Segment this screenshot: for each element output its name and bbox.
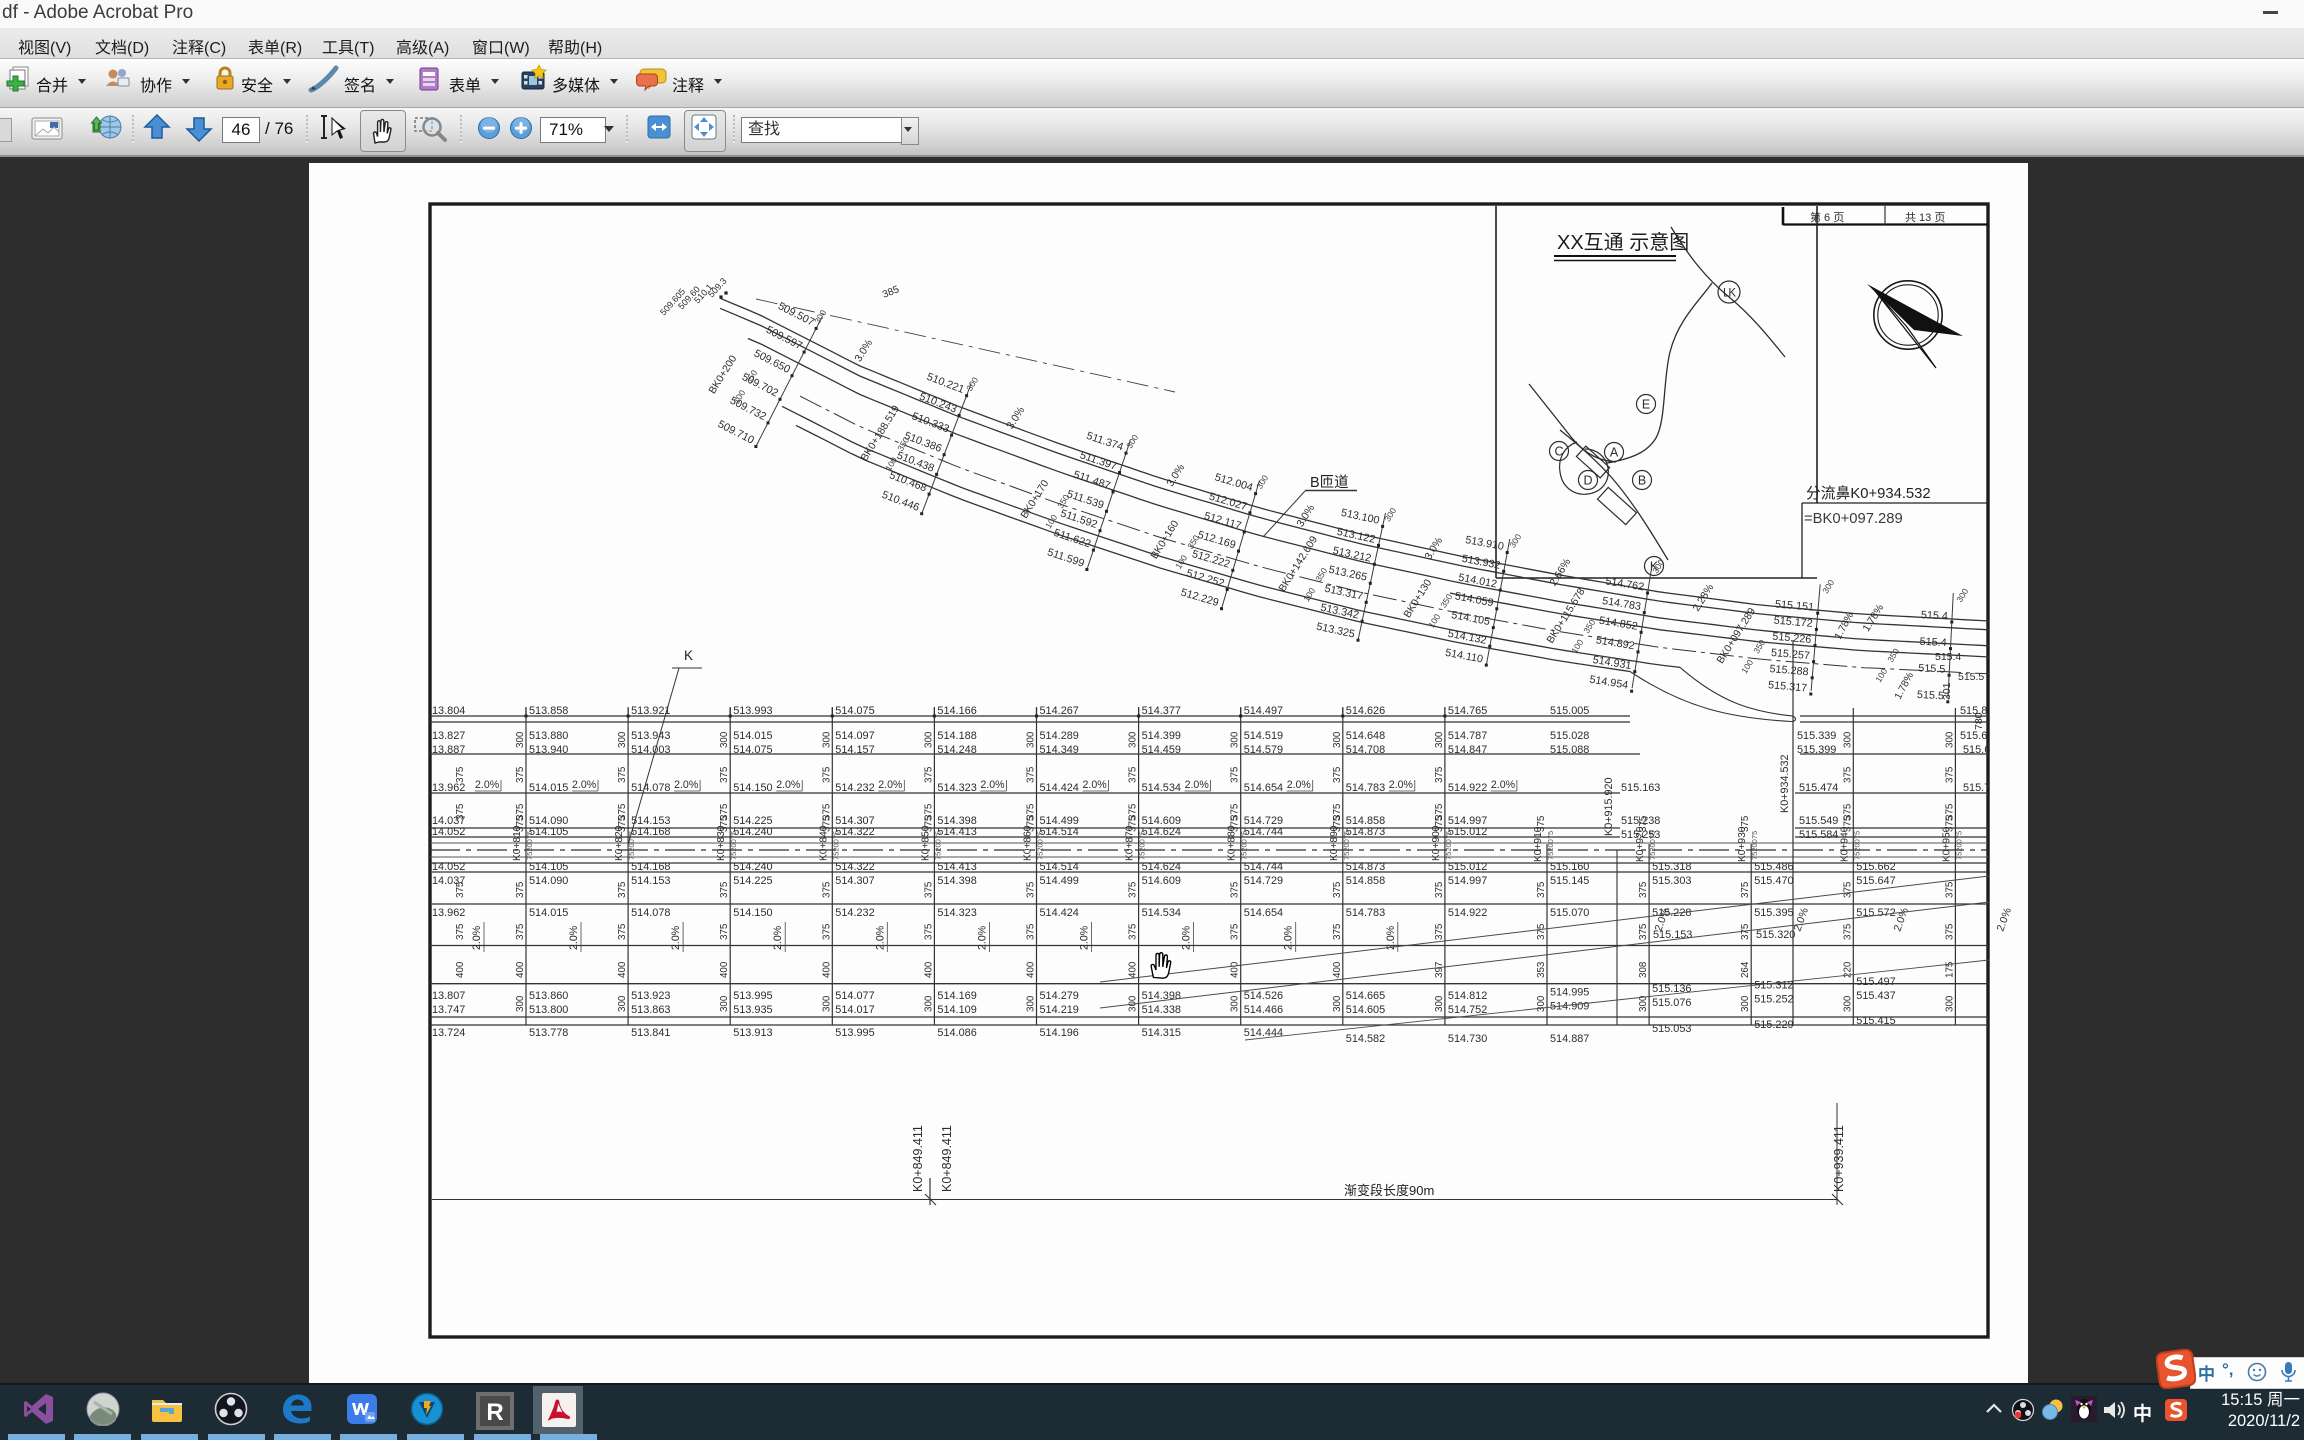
svg-text:514.090: 514.090 xyxy=(529,875,568,887)
svg-text:514.730: 514.730 xyxy=(1448,1033,1487,1045)
svg-text:375: 375 xyxy=(1842,815,1853,832)
svg-text:13.724: 13.724 xyxy=(432,1027,465,1039)
svg-text:513.841: 513.841 xyxy=(631,1027,670,1039)
svg-text:E: E xyxy=(1642,398,1650,412)
svg-text:514.015: 514.015 xyxy=(529,907,568,919)
svg-text:515.6: 515.6 xyxy=(1963,744,1990,756)
svg-text:375: 375 xyxy=(1026,766,1037,783)
svg-text:300: 300 xyxy=(515,731,526,748)
svg-text:514.349: 514.349 xyxy=(1040,744,1079,756)
svg-text:13.804: 13.804 xyxy=(432,705,465,717)
svg-text:514.279: 514.279 xyxy=(1040,990,1079,1002)
svg-text:515.437: 515.437 xyxy=(1856,990,1895,1002)
svg-text:513.778: 513.778 xyxy=(529,1027,568,1039)
svg-text:514.873: 514.873 xyxy=(1346,861,1385,873)
svg-text:375: 375 xyxy=(719,881,730,898)
svg-text:514.459: 514.459 xyxy=(1142,744,1181,756)
svg-text:515.497: 515.497 xyxy=(1856,976,1895,988)
svg-text:514.887: 514.887 xyxy=(1550,1033,1589,1045)
svg-text:515.136: 515.136 xyxy=(1652,983,1691,995)
svg-text:400: 400 xyxy=(1230,961,1241,978)
svg-text:513.860: 513.860 xyxy=(529,990,568,1002)
svg-text:514.624: 514.624 xyxy=(1142,826,1181,838)
svg-text:513.863: 513.863 xyxy=(631,1004,670,1016)
svg-text:515.395: 515.395 xyxy=(1754,907,1793,919)
svg-text:515.163: 515.163 xyxy=(1621,782,1660,794)
svg-text:513.995: 513.995 xyxy=(835,1027,874,1039)
svg-text:514.196: 514.196 xyxy=(1040,1027,1079,1039)
svg-text:375: 375 xyxy=(1332,923,1343,940)
svg-text:375: 375 xyxy=(719,766,730,783)
svg-text:514.232: 514.232 xyxy=(835,782,874,794)
svg-text:514.534: 514.534 xyxy=(1142,782,1181,794)
svg-text:514.105: 514.105 xyxy=(529,826,568,838)
svg-text:515.303: 515.303 xyxy=(1652,875,1691,887)
svg-text:375: 375 xyxy=(1740,815,1751,832)
svg-text:514.534: 514.534 xyxy=(1142,907,1181,919)
svg-text:375: 375 xyxy=(617,923,628,940)
svg-text:375: 375 xyxy=(1026,923,1037,940)
svg-text:515.6: 515.6 xyxy=(1960,730,1987,742)
svg-text:300: 300 xyxy=(1026,731,1037,748)
svg-text:2.0%: 2.0% xyxy=(874,925,886,950)
svg-text:514.153: 514.153 xyxy=(631,875,670,887)
svg-text:514.078: 514.078 xyxy=(631,782,670,794)
svg-text:513.935: 513.935 xyxy=(733,1004,772,1016)
svg-text:2.0%: 2.0% xyxy=(1181,925,1193,950)
svg-text:R: R xyxy=(486,1399,503,1426)
svg-text:514.077: 514.077 xyxy=(835,990,874,1002)
svg-text:514.219: 514.219 xyxy=(1040,1004,1079,1016)
svg-text:514.783: 514.783 xyxy=(1346,782,1385,794)
svg-text:514.157: 514.157 xyxy=(835,744,874,756)
svg-text:513.880: 513.880 xyxy=(529,730,568,742)
svg-text:LK: LK xyxy=(1723,288,1736,300)
svg-text:2.0%: 2.0% xyxy=(674,779,699,791)
svg-text:515.339: 515.339 xyxy=(1797,730,1836,742)
svg-text:375: 375 xyxy=(1230,766,1241,783)
svg-text:513.943: 513.943 xyxy=(631,730,670,742)
svg-text:514.626: 514.626 xyxy=(1346,705,1385,717)
svg-text:=BK0+097.289: =BK0+097.289 xyxy=(1804,511,1903,527)
svg-text:375: 375 xyxy=(719,923,730,940)
svg-text:375: 375 xyxy=(1332,881,1343,898)
svg-text:300: 300 xyxy=(1332,995,1343,1012)
svg-text:400: 400 xyxy=(455,961,466,978)
svg-text:375: 375 xyxy=(1128,766,1139,783)
svg-text:375: 375 xyxy=(923,766,934,783)
svg-text:375: 375 xyxy=(1536,881,1547,898)
svg-text:300: 300 xyxy=(821,995,832,1012)
svg-text:400: 400 xyxy=(719,961,730,978)
svg-text:375: 375 xyxy=(455,803,466,820)
svg-text:300: 300 xyxy=(1536,995,1547,1012)
svg-text:514.497: 514.497 xyxy=(1244,705,1283,717)
svg-text:400: 400 xyxy=(515,961,526,978)
svg-text:513.923: 513.923 xyxy=(631,990,670,1002)
svg-text:514.240: 514.240 xyxy=(733,826,772,838)
svg-text:514.466: 514.466 xyxy=(1244,1004,1283,1016)
svg-text:514.708: 514.708 xyxy=(1346,744,1385,756)
svg-text:300: 300 xyxy=(617,731,628,748)
svg-text:XX互通 示意图: XX互通 示意图 xyxy=(1557,231,1689,254)
svg-text:300: 300 xyxy=(1332,731,1343,748)
svg-text:300: 300 xyxy=(1434,995,1445,1012)
svg-text:514.413: 514.413 xyxy=(937,861,976,873)
svg-text:375: 375 xyxy=(1536,923,1547,940)
svg-text:300: 300 xyxy=(1026,995,1037,1012)
svg-text:514.168: 514.168 xyxy=(631,826,670,838)
svg-text:375: 375 xyxy=(1332,766,1343,783)
svg-text:375: 375 xyxy=(1638,815,1649,832)
svg-text:514.015: 514.015 xyxy=(733,730,772,742)
svg-text:515.549: 515.549 xyxy=(1799,815,1838,827)
svg-text:B: B xyxy=(1638,474,1646,488)
svg-text:515.012: 515.012 xyxy=(1448,861,1487,873)
svg-text:514.654: 514.654 xyxy=(1244,907,1283,919)
svg-text:14.052: 14.052 xyxy=(432,861,465,873)
svg-text:514.168: 514.168 xyxy=(631,861,670,873)
svg-text:514.444: 514.444 xyxy=(1244,1027,1283,1039)
svg-text:375: 375 xyxy=(1944,815,1955,832)
svg-text:375: 375 xyxy=(1944,923,1955,940)
svg-text:514.654: 514.654 xyxy=(1244,782,1283,794)
svg-text:514.873: 514.873 xyxy=(1346,826,1385,838)
svg-text:514.307: 514.307 xyxy=(835,875,874,887)
svg-text:514.582: 514.582 xyxy=(1346,1033,1385,1045)
svg-text:780: 780 xyxy=(1973,712,1985,730)
svg-text:300: 300 xyxy=(1230,731,1241,748)
svg-text:514.624: 514.624 xyxy=(1142,861,1181,873)
svg-text:514.289: 514.289 xyxy=(1040,730,1079,742)
svg-text:514.665: 514.665 xyxy=(1346,990,1385,1002)
svg-text:514.323: 514.323 xyxy=(937,782,976,794)
svg-text:514.150: 514.150 xyxy=(733,782,772,794)
svg-text:300: 300 xyxy=(1944,731,1955,748)
svg-text:514.413: 514.413 xyxy=(937,826,976,838)
svg-text:2.0%: 2.0% xyxy=(572,779,597,791)
svg-text:514.514: 514.514 xyxy=(1040,861,1079,873)
svg-text:2.0%: 2.0% xyxy=(475,779,500,791)
svg-text:513.913: 513.913 xyxy=(733,1027,772,1039)
svg-text:14.052: 14.052 xyxy=(432,826,465,838)
svg-text:共 13 页: 共 13 页 xyxy=(1905,211,1945,224)
svg-text:375: 375 xyxy=(455,766,466,783)
svg-text:514.078: 514.078 xyxy=(631,907,670,919)
svg-text:514.017: 514.017 xyxy=(835,1004,874,1016)
svg-text:375: 375 xyxy=(1434,766,1445,783)
svg-text:515.486: 515.486 xyxy=(1754,861,1793,873)
svg-text:A: A xyxy=(1610,446,1619,460)
svg-text:2.0%: 2.0% xyxy=(772,925,784,950)
svg-text:514.315: 514.315 xyxy=(1142,1027,1181,1039)
svg-text:514.499: 514.499 xyxy=(1040,875,1079,887)
svg-text:375: 375 xyxy=(515,923,526,940)
svg-text:514.322: 514.322 xyxy=(835,826,874,838)
svg-text:514.922: 514.922 xyxy=(1448,782,1487,794)
svg-text:514.922: 514.922 xyxy=(1448,907,1487,919)
svg-text:514.003: 514.003 xyxy=(631,744,670,756)
svg-text:375: 375 xyxy=(1434,923,1445,940)
svg-text:2.0%: 2.0% xyxy=(568,925,580,950)
svg-text:375: 375 xyxy=(821,766,832,783)
svg-text:375: 375 xyxy=(1842,923,1853,940)
svg-text:375: 375 xyxy=(455,923,466,940)
svg-text:515.012: 515.012 xyxy=(1448,826,1487,838)
svg-text:514.514: 514.514 xyxy=(1040,826,1079,838)
svg-text:397: 397 xyxy=(1434,962,1445,978)
svg-text:300: 300 xyxy=(1944,995,1955,1012)
svg-text:514.744: 514.744 xyxy=(1244,826,1283,838)
svg-text:515.4: 515.4 xyxy=(1921,609,1949,622)
svg-text:400: 400 xyxy=(821,961,832,978)
svg-text:2.0%: 2.0% xyxy=(1491,779,1516,791)
svg-text:514.648: 514.648 xyxy=(1346,730,1385,742)
svg-text:7520075: 7520075 xyxy=(1954,831,1963,860)
svg-text:515.229: 515.229 xyxy=(1754,1019,1793,1031)
svg-text:2.0%: 2.0% xyxy=(980,779,1005,791)
svg-text:375: 375 xyxy=(1026,881,1037,898)
svg-text:514.075: 514.075 xyxy=(733,744,772,756)
svg-text:514.609: 514.609 xyxy=(1142,875,1181,887)
svg-text:375: 375 xyxy=(821,815,832,832)
svg-text:515.160: 515.160 xyxy=(1550,861,1589,873)
svg-text:渐变段长度90m: 渐变段长度90m xyxy=(1344,1183,1434,1198)
svg-text:第 6 页: 第 6 页 xyxy=(1810,210,1844,224)
svg-text:301: 301 xyxy=(1941,682,1953,700)
svg-text:514.240: 514.240 xyxy=(733,861,772,873)
svg-text:514.166: 514.166 xyxy=(937,705,976,717)
svg-text:514.398: 514.398 xyxy=(937,875,976,887)
svg-text:515.005: 515.005 xyxy=(1550,705,1589,717)
svg-text:514.526: 514.526 xyxy=(1244,990,1283,1002)
svg-text:514.225: 514.225 xyxy=(733,875,772,887)
svg-text:375: 375 xyxy=(1026,815,1037,832)
svg-text:515.399: 515.399 xyxy=(1797,744,1836,756)
svg-text:514.267: 514.267 xyxy=(1040,705,1079,717)
svg-text:514.015: 514.015 xyxy=(529,782,568,794)
svg-text:375: 375 xyxy=(1128,881,1139,898)
svg-text:515.088: 515.088 xyxy=(1550,744,1589,756)
svg-text:375: 375 xyxy=(1230,923,1241,940)
svg-text:513.940: 513.940 xyxy=(529,744,568,756)
svg-text:300: 300 xyxy=(923,731,934,748)
svg-text:514.322: 514.322 xyxy=(835,861,874,873)
svg-text:514.729: 514.729 xyxy=(1244,875,1283,887)
svg-text:375: 375 xyxy=(1944,766,1955,783)
svg-text:2.0%: 2.0% xyxy=(1287,779,1312,791)
svg-text:514.232: 514.232 xyxy=(835,907,874,919)
svg-text:K0+939.411: K0+939.411 xyxy=(1832,1125,1846,1192)
svg-text:D: D xyxy=(1583,474,1592,488)
svg-text:515.584: 515.584 xyxy=(1799,829,1838,841)
svg-text:515.320: 515.320 xyxy=(1756,929,1795,941)
svg-text:514.188: 514.188 xyxy=(937,730,976,742)
svg-text:2.0%: 2.0% xyxy=(976,925,988,950)
svg-text:375: 375 xyxy=(923,881,934,898)
svg-text:375: 375 xyxy=(1842,881,1853,898)
svg-text:375: 375 xyxy=(923,923,934,940)
svg-text:515.4: 515.4 xyxy=(1919,636,1947,649)
svg-text:375: 375 xyxy=(1740,881,1751,898)
svg-text:375: 375 xyxy=(1434,881,1445,898)
svg-text:375: 375 xyxy=(821,881,832,898)
svg-text:300: 300 xyxy=(1128,731,1139,748)
svg-text:K: K xyxy=(684,648,693,663)
svg-text:375: 375 xyxy=(515,766,526,783)
svg-text:300: 300 xyxy=(719,731,730,748)
svg-text:515.145: 515.145 xyxy=(1550,875,1589,887)
svg-text:514.424: 514.424 xyxy=(1040,907,1079,919)
svg-text:400: 400 xyxy=(923,961,934,978)
svg-text:514.169: 514.169 xyxy=(937,990,976,1002)
svg-text:515.076: 515.076 xyxy=(1652,997,1691,1009)
svg-text:513.921: 513.921 xyxy=(631,705,670,717)
svg-text:515.252: 515.252 xyxy=(1754,994,1793,1006)
svg-text:375: 375 xyxy=(1536,815,1547,832)
svg-text:300: 300 xyxy=(1842,731,1853,748)
svg-text:300: 300 xyxy=(923,995,934,1012)
svg-text:375: 375 xyxy=(1434,815,1445,832)
svg-text:2.0%: 2.0% xyxy=(670,925,682,950)
svg-text:K0+849.411: K0+849.411 xyxy=(911,1125,925,1192)
svg-text:514.579: 514.579 xyxy=(1244,744,1283,756)
svg-text:375: 375 xyxy=(617,881,628,898)
svg-text:513.995: 513.995 xyxy=(733,990,772,1002)
svg-text:515.662: 515.662 xyxy=(1856,861,1895,873)
svg-text:分流鼻K0+934.532: 分流鼻K0+934.532 xyxy=(1806,485,1931,502)
svg-text:514.097: 514.097 xyxy=(835,730,874,742)
svg-text:375: 375 xyxy=(1842,766,1853,783)
svg-text:515.474: 515.474 xyxy=(1799,782,1838,794)
svg-text:514.605: 514.605 xyxy=(1346,1004,1385,1016)
svg-text:375: 375 xyxy=(1332,815,1343,832)
svg-text:514.323: 514.323 xyxy=(937,907,976,919)
svg-text:513.858: 513.858 xyxy=(529,705,568,717)
svg-text:2.0%: 2.0% xyxy=(1283,925,1295,950)
svg-text:2.0%: 2.0% xyxy=(1079,925,1091,950)
svg-text:514.086: 514.086 xyxy=(937,1027,976,1039)
svg-text:300: 300 xyxy=(617,995,628,1012)
svg-text:515.647: 515.647 xyxy=(1856,875,1895,887)
svg-text:375: 375 xyxy=(617,766,628,783)
svg-text:2.0%: 2.0% xyxy=(1389,779,1414,791)
svg-text:13.887: 13.887 xyxy=(432,744,465,756)
svg-text:375: 375 xyxy=(1230,881,1241,898)
svg-text:514.997: 514.997 xyxy=(1448,875,1487,887)
svg-text:515.4: 515.4 xyxy=(1935,651,1961,663)
svg-text:300: 300 xyxy=(821,731,832,748)
svg-text:13.807: 13.807 xyxy=(432,990,465,1002)
svg-text:515.053: 515.053 xyxy=(1652,1023,1691,1035)
svg-text:K0+934.532: K0+934.532 xyxy=(1779,754,1791,813)
svg-text:375: 375 xyxy=(1638,923,1649,940)
svg-text:514.995: 514.995 xyxy=(1550,987,1589,999)
svg-text:514.765: 514.765 xyxy=(1448,705,1487,717)
svg-text:514.399: 514.399 xyxy=(1142,730,1181,742)
svg-text:375: 375 xyxy=(617,815,628,832)
svg-text:300: 300 xyxy=(1230,995,1241,1012)
svg-text:375: 375 xyxy=(1128,815,1139,832)
svg-text:2.0%: 2.0% xyxy=(1185,779,1210,791)
svg-text:2.0%: 2.0% xyxy=(471,925,483,950)
svg-text:515.415: 515.415 xyxy=(1856,1015,1895,1027)
svg-text:2.0%: 2.0% xyxy=(1385,925,1397,950)
svg-text:514.338: 514.338 xyxy=(1142,1004,1181,1016)
svg-text:400: 400 xyxy=(617,961,628,978)
svg-text:514.424: 514.424 xyxy=(1040,782,1079,794)
svg-text:13.747: 13.747 xyxy=(432,1004,465,1016)
svg-text:2.0%: 2.0% xyxy=(878,779,903,791)
svg-text:C: C xyxy=(1554,445,1563,459)
svg-text:300: 300 xyxy=(719,995,730,1012)
svg-text:514.377: 514.377 xyxy=(1142,705,1181,717)
svg-text:264: 264 xyxy=(1740,961,1751,978)
svg-text:375: 375 xyxy=(1944,881,1955,898)
svg-text:308: 308 xyxy=(1638,961,1649,978)
svg-text:K0+849.411: K0+849.411 xyxy=(940,1125,954,1192)
svg-text:K0+915.920: K0+915.920 xyxy=(1603,777,1615,836)
svg-text:513.993: 513.993 xyxy=(733,705,772,717)
svg-text:B匝道: B匝道 xyxy=(1310,474,1349,491)
svg-text:515.470: 515.470 xyxy=(1754,875,1793,887)
svg-text:375: 375 xyxy=(719,815,730,832)
svg-text:300: 300 xyxy=(515,995,526,1012)
svg-text:7520075: 7520075 xyxy=(1546,831,1555,860)
svg-text:400: 400 xyxy=(1332,961,1343,978)
svg-text:2.0%: 2.0% xyxy=(1083,779,1108,791)
svg-text:375: 375 xyxy=(515,881,526,898)
svg-text:375: 375 xyxy=(515,815,526,832)
svg-text:353: 353 xyxy=(1536,961,1547,978)
svg-text:514.075: 514.075 xyxy=(835,705,874,717)
svg-text:514.812: 514.812 xyxy=(1448,990,1487,1002)
svg-text:7520075: 7520075 xyxy=(1852,831,1861,860)
svg-text:400: 400 xyxy=(1128,961,1139,978)
svg-text:515.318: 515.318 xyxy=(1652,861,1691,873)
svg-text:300: 300 xyxy=(1740,995,1751,1012)
svg-text:375: 375 xyxy=(821,923,832,940)
svg-text:514.109: 514.109 xyxy=(937,1004,976,1016)
svg-text:514.519: 514.519 xyxy=(1244,730,1283,742)
svg-text:2.0%: 2.0% xyxy=(776,779,801,791)
svg-text:514.105: 514.105 xyxy=(529,861,568,873)
svg-text:7520075: 7520075 xyxy=(1750,831,1759,860)
svg-text:515.028: 515.028 xyxy=(1550,730,1589,742)
svg-text:375: 375 xyxy=(1128,923,1139,940)
svg-text:300: 300 xyxy=(1434,731,1445,748)
svg-text:515.070: 515.070 xyxy=(1550,907,1589,919)
svg-text:514.744: 514.744 xyxy=(1244,861,1283,873)
svg-text:513.800: 513.800 xyxy=(529,1004,568,1016)
svg-text:13.827: 13.827 xyxy=(432,730,465,742)
svg-text:514.150: 514.150 xyxy=(733,907,772,919)
svg-text:375: 375 xyxy=(923,815,934,832)
svg-text:300: 300 xyxy=(1842,995,1853,1012)
svg-text:514.787: 514.787 xyxy=(1448,730,1487,742)
svg-text:515.7: 515.7 xyxy=(1963,782,1990,794)
svg-text:400: 400 xyxy=(1026,961,1037,978)
svg-text:375: 375 xyxy=(455,881,466,898)
svg-text:514.783: 514.783 xyxy=(1346,907,1385,919)
svg-text:375: 375 xyxy=(1638,881,1649,898)
svg-text:13.962: 13.962 xyxy=(432,907,465,919)
svg-text:375: 375 xyxy=(1230,815,1241,832)
svg-text:515.5: 515.5 xyxy=(1918,662,1946,675)
svg-text:514.858: 514.858 xyxy=(1346,875,1385,887)
svg-text:515.5: 515.5 xyxy=(1958,671,1984,683)
svg-text:514.847: 514.847 xyxy=(1448,744,1487,756)
